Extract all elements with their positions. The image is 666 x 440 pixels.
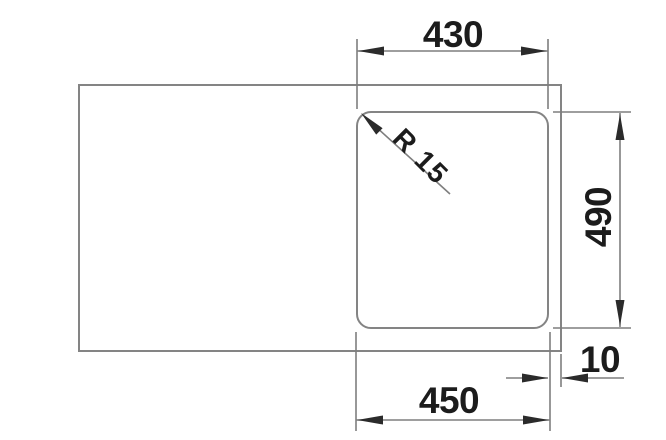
sink-outline <box>79 85 561 351</box>
arrow-up-icon <box>616 114 625 140</box>
sink-outline-group <box>79 85 561 351</box>
dim-label-width-bottom: 450 <box>419 380 479 421</box>
drawing-canvas: 430 490 450 10 <box>0 0 666 440</box>
arrow-right-icon <box>522 374 548 383</box>
dim-width-bottom: 450 <box>356 332 550 431</box>
sink-dimension-drawing: 430 490 450 10 <box>0 0 666 440</box>
bowl-outline <box>357 112 548 328</box>
arrow-left-icon <box>358 47 384 56</box>
dim-corner-radius: R 15 <box>361 113 455 194</box>
leader-arrow-icon <box>361 113 383 135</box>
dim-label-depth: 490 <box>578 187 619 247</box>
dim-edge-offset: 10 <box>506 339 624 387</box>
dim-width-top: 430 <box>357 14 548 109</box>
dim-depth: 490 <box>553 112 631 328</box>
dim-label-edge-offset: 10 <box>580 339 620 380</box>
dim-label-corner-radius: R 15 <box>387 122 455 190</box>
arrow-down-icon <box>616 300 625 326</box>
dim-label-width-top: 430 <box>423 14 483 55</box>
arrow-right-icon <box>523 416 549 425</box>
arrow-right-icon <box>521 47 547 56</box>
arrow-left-icon <box>357 416 383 425</box>
